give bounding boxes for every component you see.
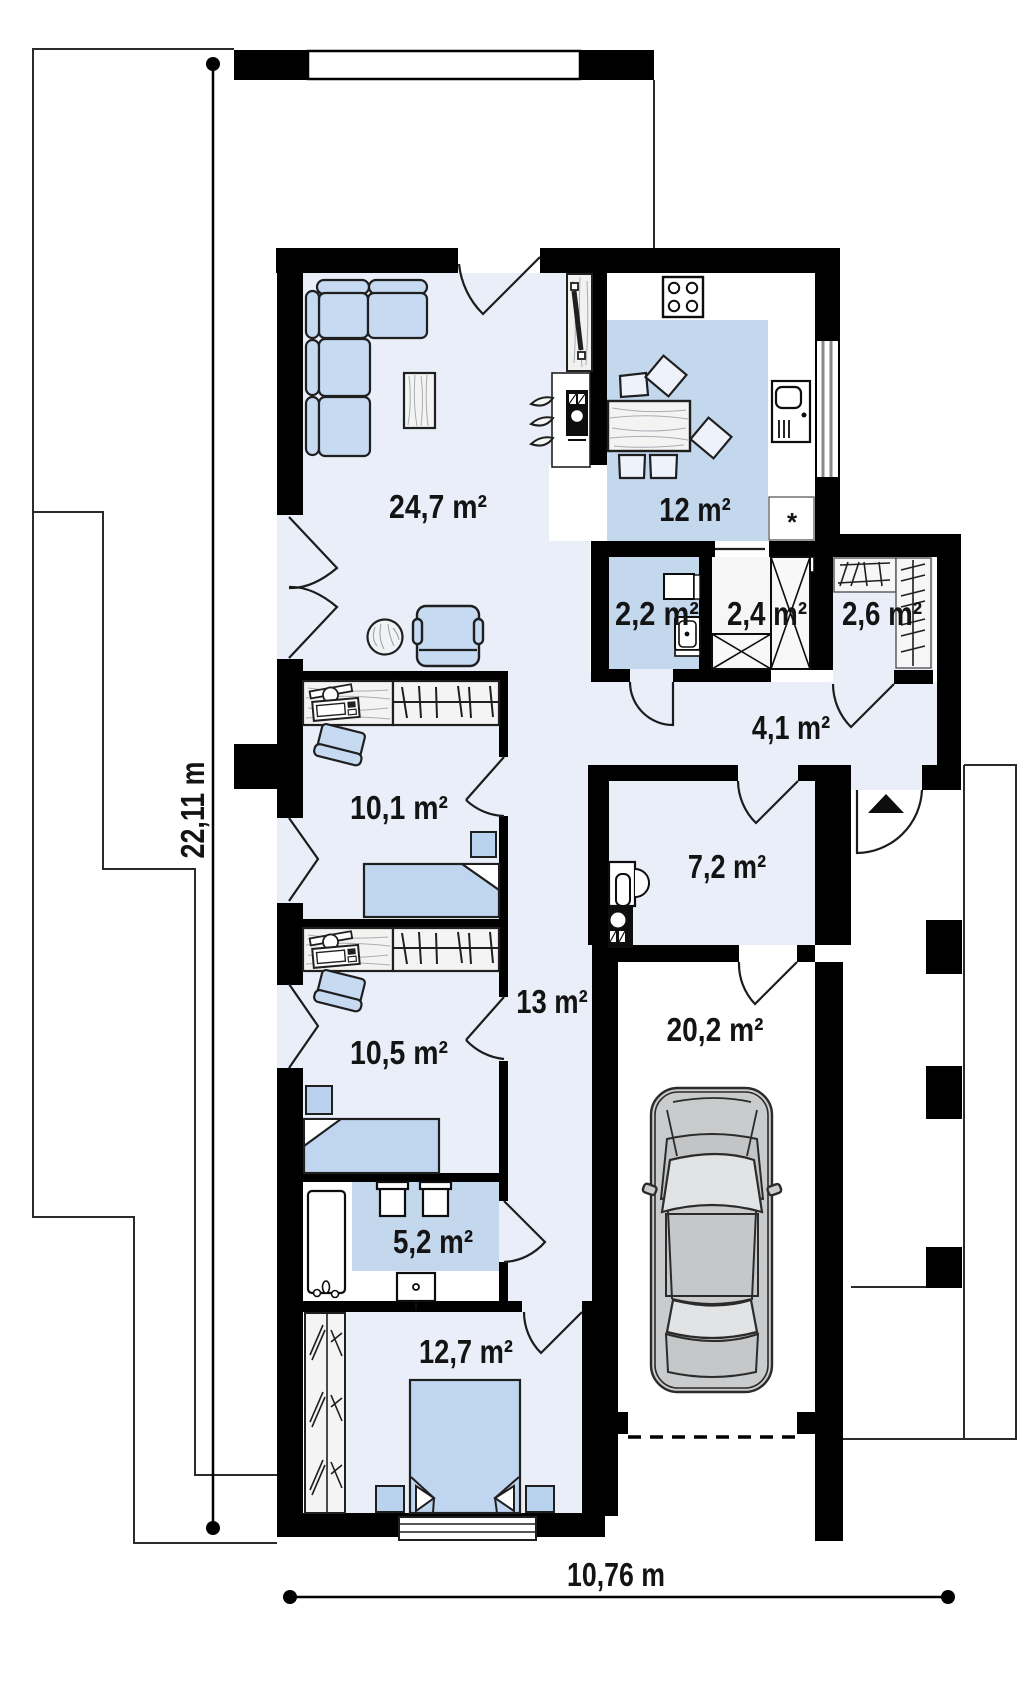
svg-text:12,7 m²: 12,7 m² (419, 1335, 513, 1371)
svg-text:2,6 m²: 2,6 m² (842, 596, 922, 633)
svg-text:5,2 m²: 5,2 m² (393, 1224, 473, 1261)
svg-text:2,4 m²: 2,4 m² (727, 596, 807, 633)
svg-text:22,11 m: 22,11 m (175, 762, 211, 859)
svg-text:4,1 m²: 4,1 m² (752, 711, 830, 747)
svg-text:10,76 m: 10,76 m (567, 1557, 665, 1593)
svg-text:7,2 m²: 7,2 m² (688, 850, 766, 886)
svg-text:2,2 m²: 2,2 m² (615, 595, 699, 632)
svg-text:12 m²: 12 m² (659, 493, 731, 529)
svg-text:*: * (787, 507, 798, 537)
svg-text:10,5 m²: 10,5 m² (350, 1034, 448, 1071)
svg-text:13 m²: 13 m² (516, 985, 588, 1021)
svg-text:10,1 m²: 10,1 m² (350, 789, 448, 826)
svg-text:20,2 m²: 20,2 m² (667, 1012, 764, 1049)
svg-text:24,7 m²: 24,7 m² (389, 488, 487, 525)
